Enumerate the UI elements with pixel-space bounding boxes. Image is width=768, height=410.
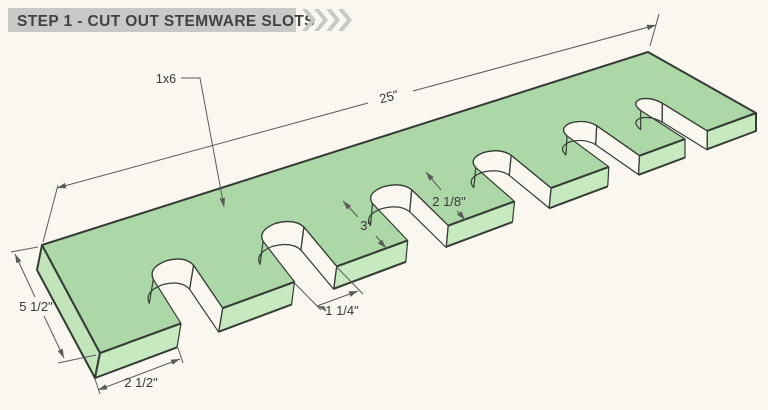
dim-label-slot-depth: 3" xyxy=(360,218,372,233)
step-title: STEP 1 - CUT OUT STEMWARE SLOTS xyxy=(17,13,315,30)
dim-label-first-finger: 2 1/2" xyxy=(124,375,158,390)
arrowhead-icon xyxy=(171,359,180,365)
dim-label-board-length: 25" xyxy=(378,87,401,107)
dim-extension-line xyxy=(11,247,38,252)
dim-extension-line xyxy=(178,348,183,363)
dim-extension-line xyxy=(43,185,58,242)
diagram-canvas: STEP 1 - CUT OUT STEMWARE SLOTS xyxy=(0,0,768,410)
header: STEP 1 - CUT OUT STEMWARE SLOTS xyxy=(8,8,352,32)
arrowhead-icon xyxy=(98,384,107,390)
arrowhead-icon xyxy=(57,183,66,188)
arrowhead-icon xyxy=(349,291,358,297)
leader-line xyxy=(181,78,224,207)
arrowhead-icon xyxy=(15,254,21,263)
part-callout: 1x6 xyxy=(156,72,225,207)
dim-extension-line xyxy=(650,14,659,46)
stemware-rack-step1-diagram: STEP 1 - CUT OUT STEMWARE SLOTS xyxy=(0,0,768,410)
dim-label-board-width: 5 1/2" xyxy=(19,299,53,314)
dim-extension-line xyxy=(95,379,100,394)
part-label: 1x6 xyxy=(156,72,176,86)
arrowhead-icon xyxy=(58,349,64,358)
dim-label-slot-spacing: 2 1/8" xyxy=(432,194,466,209)
dim-label-slot-width: 1 1/4" xyxy=(325,303,359,318)
